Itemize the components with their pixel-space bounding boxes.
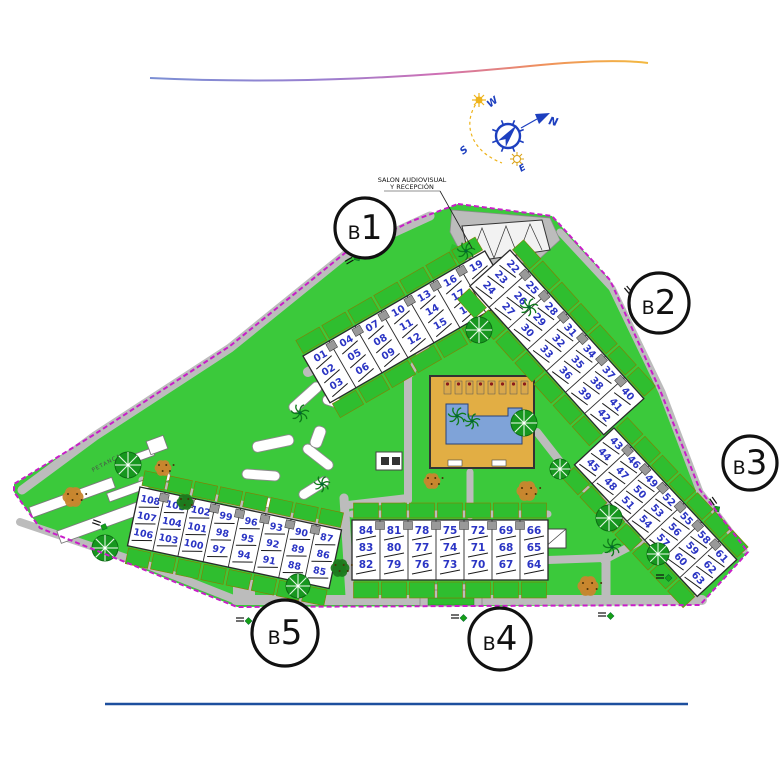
sun-lounger-icon [510, 381, 517, 394]
unit-number: 68 [499, 542, 514, 554]
unit-number: 69 [499, 525, 514, 537]
stairwell [432, 522, 441, 530]
unit-number: 66 [527, 525, 542, 537]
terrace [382, 503, 407, 518]
unit-number: 64 [527, 559, 542, 571]
terrace [522, 503, 547, 518]
tree-icon [647, 543, 669, 565]
unit-number: 79 [387, 559, 402, 571]
block-label-b2: B2 [629, 273, 689, 333]
sun-lounger-icon [455, 381, 462, 394]
unit-number: 67 [499, 559, 514, 571]
compass-north-label: N [547, 114, 559, 129]
unit-number: 83 [359, 542, 374, 554]
sun-lounger-icon [488, 381, 495, 394]
unit-number: 82 [359, 559, 374, 571]
compass-east-label: E [518, 162, 529, 174]
stairwell [260, 514, 270, 524]
unit-number: 77 [415, 542, 430, 554]
unit-number: 76 [415, 559, 430, 571]
sun-icon [472, 93, 486, 107]
terrace [382, 582, 407, 598]
svg-text:Y RECEPCIÓN: Y RECEPCIÓN [389, 182, 434, 191]
unit-number: 72 [471, 525, 486, 537]
entrance-marker-icon [451, 614, 467, 621]
spa-box [376, 452, 402, 470]
stairwell [460, 522, 469, 530]
sun-lounger-icon [477, 381, 484, 394]
plan-svg: PETANCA 01020304050607080910111213141516… [0, 0, 780, 780]
tree-icon [286, 574, 310, 598]
tree-icon [596, 505, 622, 531]
block-label-b3: B3 [723, 436, 777, 490]
compass-south-label: S [458, 144, 470, 157]
terrace [354, 503, 379, 518]
block-label-b1: B1 [335, 198, 395, 258]
tree-icon [115, 452, 141, 478]
unit-number: 78 [415, 525, 430, 537]
stairwell [209, 504, 219, 514]
stairwell [234, 509, 244, 519]
stairwell [310, 525, 320, 535]
building-block-b4: 8483828180797877767574737271706968676665… [352, 503, 548, 598]
terrace [522, 582, 547, 598]
unit-number: 65 [527, 542, 542, 554]
terrace [466, 503, 491, 518]
sun-lounger-icon [499, 381, 506, 394]
terrace [354, 582, 379, 598]
terrace [438, 582, 463, 598]
compass-rose-icon: N W S E [458, 93, 559, 175]
block-label-b4: B4 [469, 608, 531, 670]
site-plan-page: PETANCA 01020304050607080910111213141516… [0, 0, 780, 780]
compass-west-label: W [485, 94, 501, 110]
unit-number: 74 [443, 542, 458, 554]
unit-number: 71 [471, 542, 486, 554]
unit-number: 70 [471, 559, 486, 571]
unit-number: 80 [387, 542, 402, 554]
unit-number: 73 [443, 559, 458, 571]
sun-lounger-icon [521, 381, 528, 394]
stairwell [516, 522, 525, 530]
tree-icon [550, 459, 570, 479]
terrace [410, 503, 435, 518]
unit-number: 81 [387, 525, 402, 537]
terrace [410, 582, 435, 598]
sun-lounger-icon [444, 381, 451, 394]
stairwell [376, 522, 385, 530]
entrance-marker-icon [598, 612, 614, 619]
block-label-b5: B5 [252, 600, 318, 666]
entrance-marker-icon [236, 617, 252, 624]
terrace [494, 503, 519, 518]
unit-number: 75 [443, 525, 458, 537]
terrace [438, 503, 463, 518]
stairwell [404, 522, 413, 530]
tree-icon [511, 410, 537, 436]
decorative-gradient-line [150, 61, 648, 80]
terrace [466, 582, 491, 598]
tree-icon [466, 317, 492, 343]
stairwell [285, 520, 295, 530]
stairwell [488, 522, 497, 530]
sun-lounger-icon [466, 381, 473, 394]
unit-number: 84 [359, 525, 374, 537]
terrace [494, 582, 519, 598]
